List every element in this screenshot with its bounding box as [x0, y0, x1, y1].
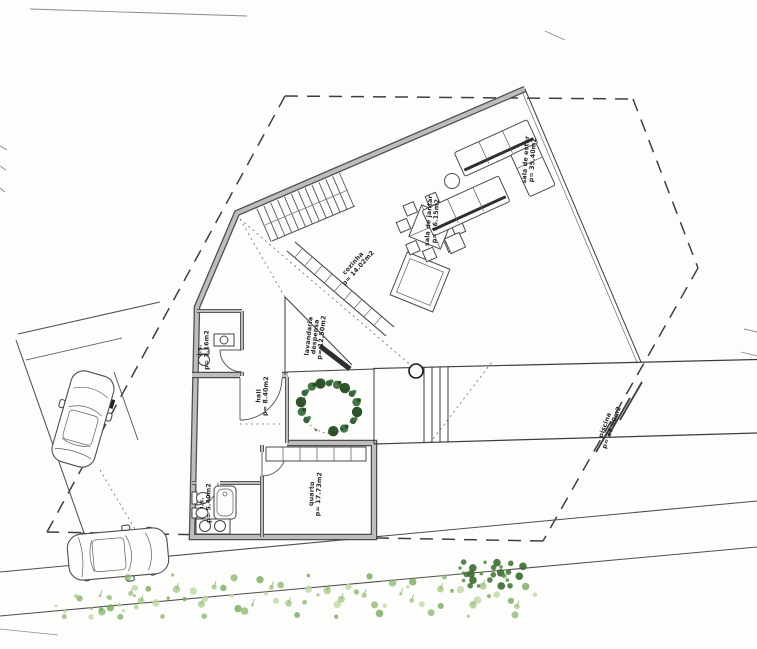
plant-blob [190, 587, 197, 594]
stair-tread [326, 179, 340, 212]
glazing-line [525, 89, 641, 362]
terrace [374, 360, 757, 453]
plant-blob [90, 607, 93, 610]
plant-blob [230, 594, 234, 598]
plant-blob [519, 562, 527, 570]
plant-blob [341, 428, 344, 431]
plant-blob [469, 576, 477, 584]
plant-blob [358, 408, 362, 412]
room-area: p= 5.40m2 [206, 483, 213, 523]
glazing-line [522, 91, 638, 364]
plant-blob [88, 614, 94, 620]
plant-blob [354, 417, 358, 421]
room-name: i.s. [197, 344, 204, 355]
counter-tick [314, 265, 322, 274]
plant-blob [493, 559, 501, 567]
stair-tread [319, 182, 333, 215]
plant-blob [302, 408, 306, 412]
stair-stringer [272, 206, 355, 241]
plant-blob [182, 597, 187, 602]
plant-blob [376, 610, 383, 617]
plant-blob [371, 601, 378, 608]
plant-blob [334, 615, 338, 619]
plant-blob [294, 612, 300, 618]
plant-blob [316, 593, 319, 596]
coffee-table [445, 174, 460, 189]
driveway-edge [18, 302, 160, 334]
leader-line [100, 470, 139, 536]
car-street [66, 522, 171, 587]
plant-blob [202, 596, 208, 602]
door-swing-arc [220, 350, 242, 372]
floor-plan-canvas: sala de estar p= 35.40m2 sala de jantar … [0, 0, 757, 649]
plant-blob [277, 582, 284, 589]
plant-blob [450, 589, 454, 593]
pantry-wall [320, 346, 350, 369]
room-area: p= 8.40m2 [262, 376, 270, 416]
room-label-hall: hall p= 8.40m2 [255, 376, 270, 416]
mirror [122, 525, 130, 531]
plant-blob [409, 578, 416, 585]
plant-blob [132, 585, 138, 591]
plant-blob [508, 598, 514, 604]
plant-blob [406, 585, 410, 589]
wardrobe [266, 447, 366, 461]
plant-blob [307, 574, 311, 578]
plant-blob [442, 574, 447, 579]
plant-blob [166, 596, 170, 600]
room-name: i.s. [199, 497, 206, 508]
plant-blob [487, 594, 491, 598]
sink [215, 521, 226, 532]
boundary-line [633, 99, 698, 268]
projection-line [240, 219, 286, 299]
plant-blob [467, 615, 470, 618]
plant-blob [99, 607, 103, 611]
projection-line [430, 362, 492, 443]
plant-blob [107, 595, 112, 600]
plant-blob [117, 614, 123, 620]
curb-line [114, 372, 138, 440]
plant-blob [345, 425, 349, 429]
scan-artifact [0, 146, 7, 192]
plant-blob [354, 589, 359, 594]
counter-tick [354, 300, 362, 309]
stair-tread [257, 209, 271, 242]
plant-blob [307, 416, 311, 420]
plant-blob [171, 573, 174, 576]
plant-blob [462, 579, 466, 583]
plant-blob [74, 594, 79, 599]
plant-blob [493, 591, 500, 598]
room-area: p= 3.16m2 [204, 330, 211, 370]
stair-tread [305, 188, 319, 221]
counter-edge [287, 251, 386, 336]
washbasin [220, 336, 228, 344]
plant-blob [345, 384, 349, 388]
scan-artifact [741, 329, 757, 356]
stair-tread [340, 173, 354, 206]
plant-blob [497, 582, 505, 590]
stair-tread [333, 176, 347, 209]
plant-blob [55, 605, 58, 608]
plant-blob [502, 574, 506, 578]
plant-blob [273, 598, 279, 604]
plant-blob [334, 427, 338, 431]
plant-blob [305, 586, 312, 593]
plant-blob [366, 573, 372, 579]
floor-plan-drawing: sala de estar p= 35.40m2 sala de jantar … [0, 0, 757, 649]
plant-blob [477, 584, 481, 588]
plant-blob [507, 583, 513, 589]
plant-blob [134, 605, 139, 610]
scan-artifact [30, 9, 247, 16]
scan-artifact [0, 629, 58, 635]
plant-ring [296, 378, 363, 436]
plant-blob [264, 592, 268, 596]
plant-blob [256, 576, 263, 583]
stair-tread [291, 194, 305, 227]
plant-blob [302, 600, 307, 605]
scan-artifact [545, 31, 565, 40]
plant-blob [522, 583, 529, 590]
plant-blob [220, 585, 227, 592]
plant-blob [352, 390, 356, 394]
plant-blob [438, 603, 444, 609]
plant-blob [241, 607, 249, 615]
plant-blob [487, 577, 493, 583]
plant-blob [328, 432, 331, 435]
room-label-cozinha: cozinha p= 14.02m2 [336, 245, 376, 287]
driveway-edge [26, 338, 122, 360]
plant-blob [133, 594, 136, 597]
plant-blob [152, 599, 159, 606]
plant-blob [124, 574, 131, 581]
boundary-line [285, 96, 633, 99]
plant-blob [511, 611, 518, 618]
building-walls [192, 89, 641, 537]
plant-blob [457, 586, 464, 593]
boundary-line [543, 268, 698, 541]
plant-blob [330, 379, 334, 383]
plant-blob [474, 596, 482, 604]
plant-blob [389, 579, 397, 587]
plant-blob [483, 560, 487, 564]
counter-tick [364, 308, 372, 317]
plant-blob [428, 609, 435, 616]
plant-blob [419, 601, 425, 607]
plant-blob [201, 613, 207, 619]
plant-blob [315, 429, 318, 432]
counter-tick [374, 317, 382, 326]
plant-blob [63, 610, 67, 614]
plant-blob [301, 398, 305, 402]
plant-blob [533, 592, 538, 597]
plant-blob [458, 566, 462, 570]
plant-blob [122, 609, 126, 613]
plant-blob [128, 591, 133, 596]
kitchen-island [390, 252, 450, 312]
plant-blob [117, 603, 121, 607]
plant-blob [321, 380, 325, 384]
plant-blob [499, 565, 503, 569]
room-area: p= 17.73m2 [314, 472, 323, 517]
plant-blob [461, 559, 467, 565]
plant-blob [383, 603, 387, 607]
counter-tick [334, 283, 342, 292]
courtyard-edge [287, 369, 374, 372]
plant-blob [506, 569, 512, 575]
courtyard-planting [296, 378, 363, 436]
dining-chair [396, 218, 410, 232]
plant-blob [230, 574, 237, 581]
plant-blob [357, 398, 361, 402]
counter-tick [304, 257, 312, 266]
plant-blob [160, 614, 165, 619]
plant-blob [514, 604, 520, 610]
plant-blob [305, 389, 309, 393]
dining-chair [403, 202, 417, 216]
plant-blob [234, 605, 242, 613]
plant-blob [506, 578, 510, 582]
stair-tread [298, 191, 312, 224]
projection-line [240, 219, 413, 367]
plant-blob [145, 586, 151, 592]
plant-blob [515, 572, 523, 580]
stair-tread [312, 185, 326, 218]
plant-blob [107, 604, 114, 611]
car-driveway [44, 366, 122, 471]
plant-blob [345, 583, 351, 589]
plant-blob [491, 572, 497, 578]
room-label-lavandaria: lavandaria despensa p= 12.50m2 [303, 314, 328, 360]
counter-tick [344, 291, 352, 300]
room-label-quarto: quarto p= 17.73m2 [307, 471, 323, 516]
counter-tick [295, 248, 303, 257]
plant-blob [508, 561, 514, 567]
terrace-edge [374, 360, 757, 369]
bathroom-fixtures [192, 486, 236, 534]
terrace-edge [374, 433, 757, 444]
column [409, 364, 423, 378]
plant-blob [62, 614, 67, 619]
plant-blob [479, 572, 483, 576]
room-labels: sala de estar p= 35.40m2 sala de jantar … [197, 135, 623, 523]
plant-blob [338, 381, 342, 385]
terrace-steps [424, 367, 448, 443]
counter-tick [324, 274, 332, 283]
